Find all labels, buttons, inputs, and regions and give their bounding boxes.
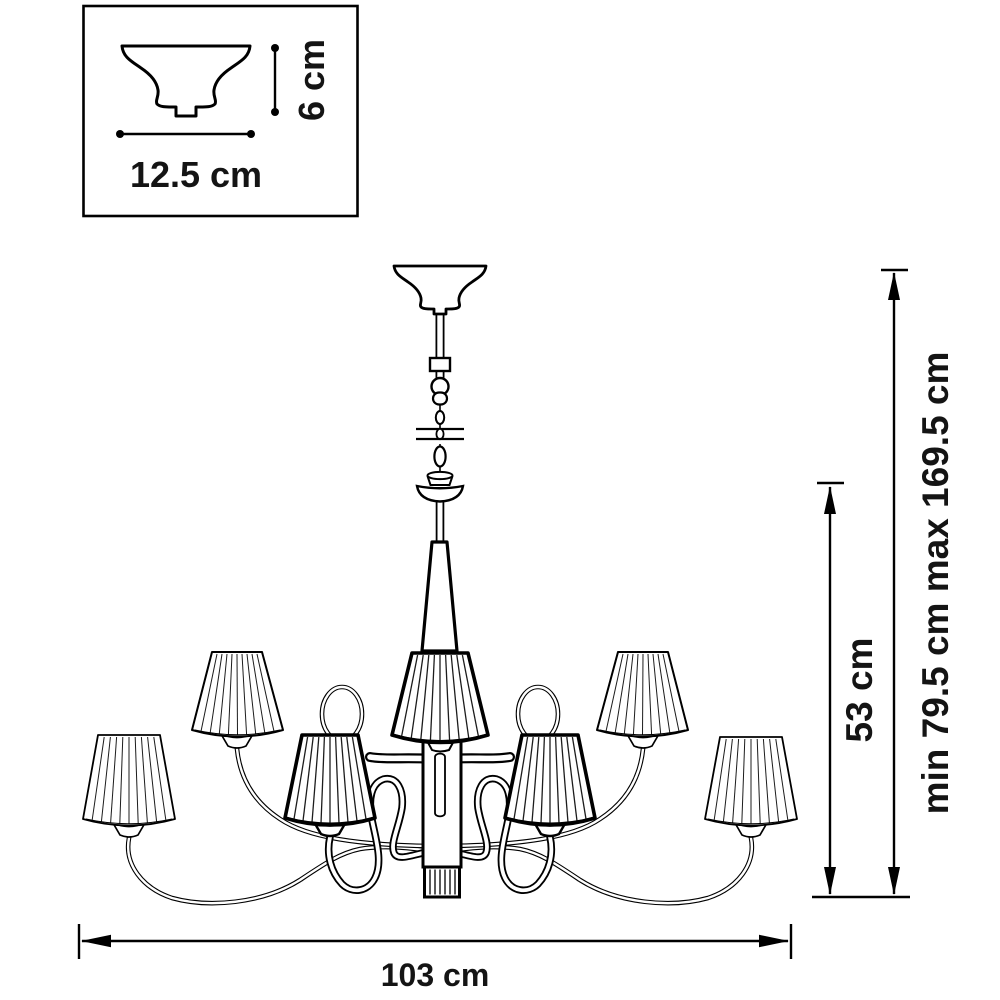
arrowhead-left (81, 935, 111, 947)
arm-far-left-core (128, 838, 430, 903)
inset-height-label: 6 cm (291, 39, 332, 121)
lampshade-front-right (505, 735, 595, 825)
arrowhead-up (888, 272, 900, 300)
chandelier-dimension-diagram: 103 cm 53 cm min 79.5 cm max 169.5 cm 6 … (0, 0, 1000, 1000)
arrowhead-right (759, 935, 789, 947)
chain-link (434, 447, 445, 467)
candle-slot (435, 754, 445, 817)
arrowhead-down (824, 867, 836, 895)
lampshade-upper-right (597, 652, 688, 737)
ceiling-canopy (394, 266, 486, 314)
arm-loop-back-right-core (518, 687, 558, 741)
chain-capsule (433, 393, 447, 405)
center-stem (422, 542, 457, 651)
overall-height-dimension: min 79.5 cm max 169.5 cm (812, 270, 956, 897)
overall-height-label: min 79.5 cm max 169.5 cm (915, 352, 956, 815)
chain-saucer (417, 486, 463, 502)
lampshade-far-left (83, 735, 175, 826)
chain-cup (428, 472, 453, 479)
chandelier-drawing (83, 266, 797, 903)
lampshade-upper-left (192, 652, 283, 737)
arm-far-right-core (450, 838, 752, 903)
width-dimension-label: 103 cm (381, 957, 490, 993)
drop-height-label: 53 cm (839, 638, 880, 743)
hub-stub-left-core (370, 757, 430, 759)
arm-loop-back-left-core (322, 687, 362, 741)
dim-dot (271, 44, 279, 52)
arrowhead-down (888, 867, 900, 895)
inset-width-label: 12.5 cm (130, 154, 262, 195)
suspension-chain (416, 314, 464, 542)
center-column (423, 736, 461, 897)
lampshade-center (392, 653, 488, 743)
lampshade-front-left (285, 735, 375, 825)
width-dimension: 103 cm (79, 924, 791, 993)
dimension-diagram-page: 103 cm 53 cm min 79.5 cm max 169.5 cm 6 … (0, 0, 1000, 1000)
detail-inset: 6 cm 12.5 cm (84, 6, 358, 216)
dim-dot (247, 130, 255, 138)
dim-dot (116, 130, 124, 138)
arrowhead-up (824, 486, 836, 514)
drop-height-dimension: 53 cm (817, 483, 880, 895)
dim-dot (271, 108, 279, 116)
lampshade-far-right (705, 737, 797, 826)
